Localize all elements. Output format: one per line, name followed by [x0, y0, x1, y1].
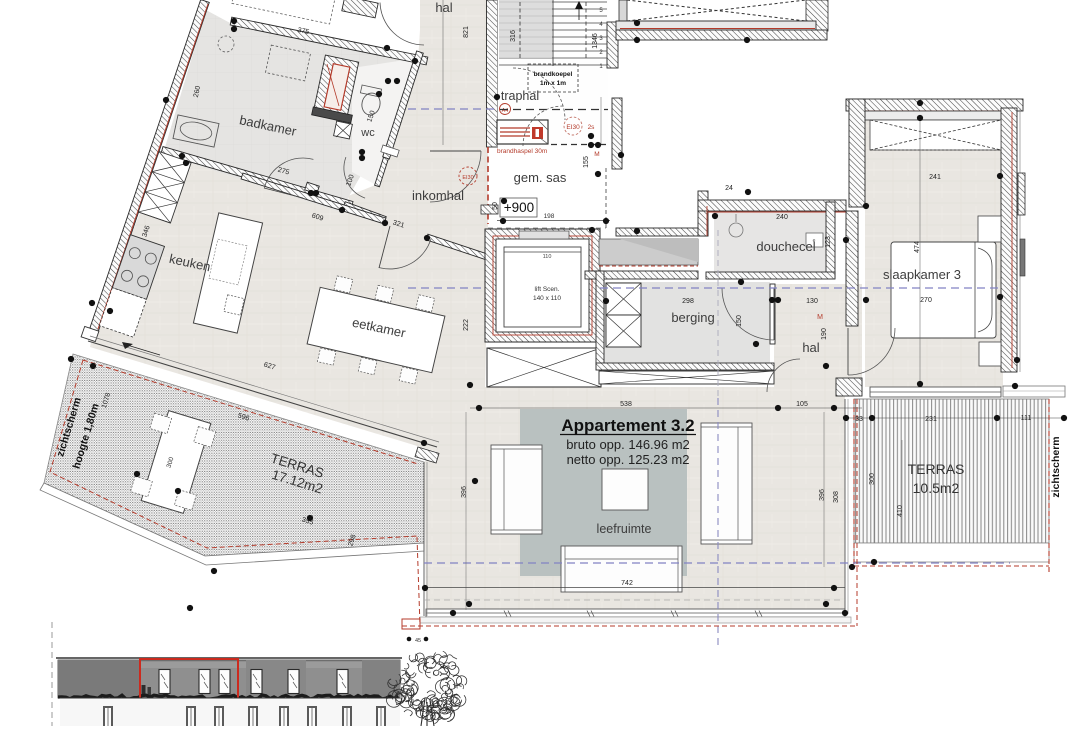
svg-text:140 x 110: 140 x 110: [533, 295, 561, 302]
svg-text:10.5m2: 10.5m2: [913, 480, 960, 496]
svg-text:EI30: EI30: [462, 175, 473, 181]
svg-text:netto opp. 125.23 m2: netto opp. 125.23 m2: [567, 452, 690, 467]
svg-text:traphal: traphal: [501, 89, 539, 103]
svg-text:EI30: EI30: [566, 124, 580, 131]
svg-text:123: 123: [825, 236, 832, 248]
svg-text:410: 410: [897, 505, 904, 517]
svg-text:45: 45: [415, 638, 421, 644]
svg-text:105: 105: [796, 401, 808, 408]
svg-text:742: 742: [621, 580, 633, 587]
svg-text:douchecel: douchecel: [756, 239, 815, 254]
svg-text:brandhaspel 30m: brandhaspel 30m: [497, 148, 547, 155]
svg-text:33: 33: [855, 416, 863, 423]
svg-text:M: M: [594, 151, 599, 158]
svg-text:1346: 1346: [592, 33, 599, 49]
svg-text:396: 396: [819, 489, 826, 501]
svg-text:brandkoepel: brandkoepel: [534, 71, 573, 78]
svg-text:wc: wc: [360, 127, 375, 139]
svg-text:155: 155: [583, 156, 590, 168]
svg-text:396: 396: [461, 486, 468, 498]
svg-text:308: 308: [833, 491, 840, 503]
svg-text:270: 270: [920, 297, 932, 304]
svg-text:150: 150: [736, 315, 743, 327]
svg-text:231: 231: [925, 416, 937, 423]
svg-text:berging: berging: [671, 310, 714, 325]
svg-text:inkomhal: inkomhal: [412, 188, 464, 203]
svg-text:111: 111: [1021, 415, 1032, 422]
svg-text:300: 300: [869, 473, 876, 485]
svg-text:222: 222: [463, 319, 470, 331]
svg-text:198: 198: [544, 213, 555, 220]
svg-text:298: 298: [682, 298, 694, 305]
svg-text:241: 241: [929, 174, 941, 181]
svg-text:2s: 2s: [588, 124, 596, 131]
svg-text:TERRAS: TERRAS: [908, 461, 965, 477]
svg-text:24: 24: [725, 185, 733, 192]
svg-text:lift Scen.: lift Scen.: [535, 286, 560, 293]
svg-text:+900: +900: [504, 200, 534, 215]
svg-text:1m x 1m: 1m x 1m: [540, 80, 566, 87]
svg-text:M: M: [817, 314, 823, 321]
svg-text:Appartement 3.2: Appartement 3.2: [561, 416, 694, 435]
svg-text:190: 190: [821, 328, 828, 340]
svg-text:316: 316: [510, 30, 517, 42]
svg-text:130: 130: [806, 298, 818, 305]
svg-text:240: 240: [776, 214, 788, 221]
svg-text:hal: hal: [435, 0, 452, 15]
svg-text:leefruimte: leefruimte: [597, 522, 652, 536]
svg-text:gem. sas: gem. sas: [514, 170, 567, 185]
svg-text:slaapkamer 3: slaapkamer 3: [883, 267, 961, 282]
svg-text:hal: hal: [802, 340, 819, 355]
svg-text:538: 538: [620, 401, 632, 408]
svg-text:50: 50: [492, 202, 499, 210]
svg-text:110: 110: [543, 254, 552, 260]
svg-text:zichtscherm: zichtscherm: [1050, 436, 1062, 497]
svg-text:bruto opp. 146.96 m2: bruto opp. 146.96 m2: [566, 437, 690, 452]
svg-text:821: 821: [463, 26, 470, 38]
